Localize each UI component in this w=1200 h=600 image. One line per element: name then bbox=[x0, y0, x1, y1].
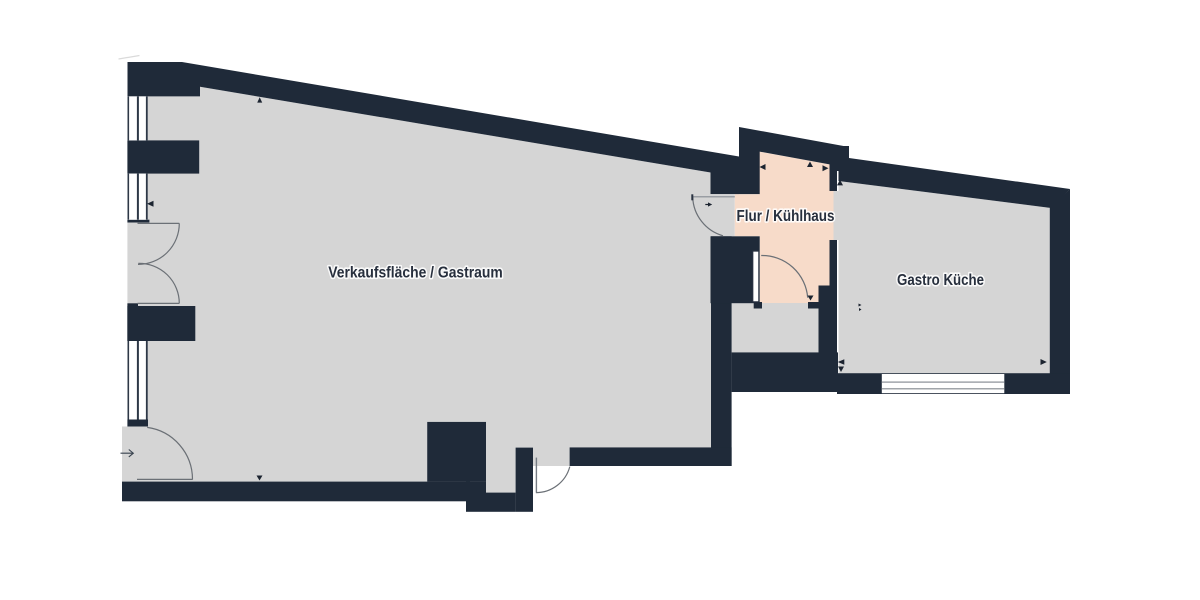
svg-text:Flur / Kühlhaus: Flur / Kühlhaus bbox=[737, 208, 835, 225]
svg-text:Verkaufsfläche / Gastraum: Verkaufsfläche / Gastraum bbox=[328, 265, 503, 282]
svg-text:Gastro Küche: Gastro Küche bbox=[897, 272, 984, 289]
